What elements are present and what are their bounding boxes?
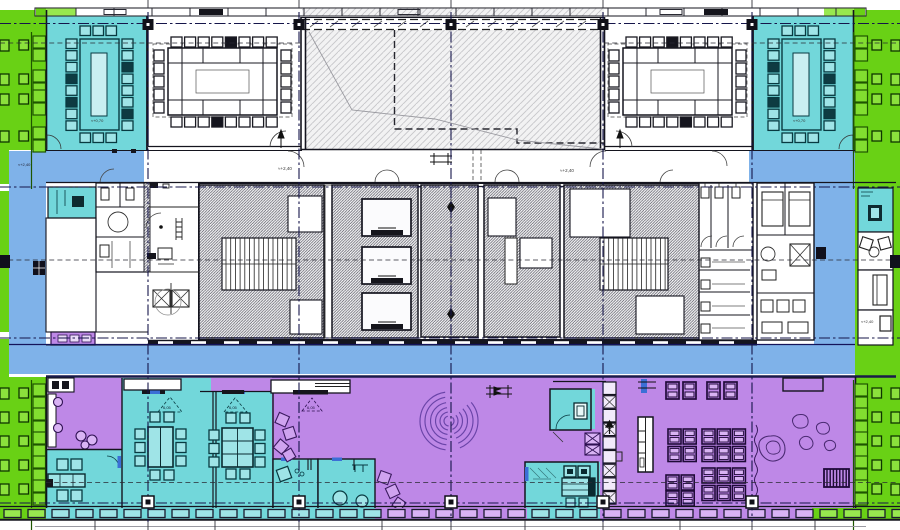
svg-text:≈+2,40: ≈+2,40 (861, 319, 874, 324)
svg-text:≈+2,40: ≈+2,40 (18, 162, 31, 167)
svg-text:≈+2,40: ≈+2,40 (560, 168, 574, 173)
svg-text:≈+0,70: ≈+0,70 (91, 118, 104, 123)
svg-text:≈+2,40: ≈+2,40 (278, 166, 292, 171)
svg-text:6,05: 6,05 (229, 405, 238, 410)
svg-text:≈+0,70: ≈+0,70 (793, 118, 806, 123)
svg-text:6,05: 6,05 (163, 405, 172, 410)
svg-text:6,05: 6,05 (307, 405, 316, 410)
